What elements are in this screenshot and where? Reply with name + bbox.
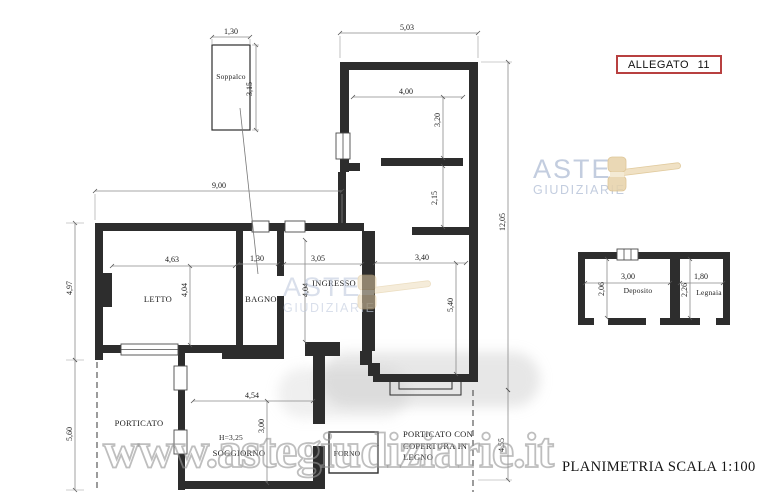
room-label-soppalco: Soppalco [216, 72, 246, 81]
dim-deposito-width: 3,00 [621, 272, 635, 281]
room-labels: Soppalco LETTO BAGNO INGRESSO SOGGIORNO … [115, 72, 723, 462]
aste-giudiziarie-logo: ASTE GIUDIZIARIE [533, 156, 626, 197]
dim-soggiorno-width: 4,54 [245, 391, 259, 400]
dim-sala-depth: 5,40 [446, 298, 455, 312]
dim-sala-width: 3,40 [415, 253, 429, 262]
gavel-icon [353, 270, 435, 316]
dim-soppalco-depth: 3,15 [245, 82, 254, 96]
room-label-bagno: BAGNO [245, 294, 277, 304]
dim-letto-width: 4,63 [165, 255, 179, 264]
dim-wing-room-depth: 3,20 [433, 113, 442, 127]
room-label-legnaia: Legnaia [696, 288, 722, 297]
dim-left-upper-depth: 4,97 [65, 281, 74, 295]
dim-deposito-depth: 2,06 [597, 282, 606, 296]
dim-ingresso-width: 3,05 [311, 254, 325, 263]
dim-bagno-width: 1,30 [250, 254, 264, 263]
plan-scale-title: PLANIMETRIA SCALA 1:100 [562, 459, 756, 476]
porch-steps [390, 382, 461, 395]
dim-legnaia-depth: 2,26 [680, 283, 689, 297]
dim-soppalco-width: 1,30 [224, 27, 238, 36]
room-label-deposito: Deposito [624, 286, 653, 295]
dim-wing-lower-depth: 2,15 [430, 191, 439, 205]
room-label-letto: LETTO [144, 294, 172, 304]
dim-wing-width: 5,03 [400, 23, 414, 32]
site-watermark: www.astegiudiziarie.it [103, 421, 553, 479]
dim-total-depth: 12,05 [498, 213, 507, 231]
dim-wing-room-width: 4,00 [399, 87, 413, 96]
dim-letto-depth: 4,04 [180, 283, 189, 297]
aste-giudiziarie-watermark-logo: ASTE GIUDIZIARIE [283, 274, 376, 315]
dim-legnaia-width: 1,80 [694, 272, 708, 281]
annex-label-box: ALLEGATO 11 [616, 55, 722, 74]
floor-plan-page: 1,30 3,15 5,03 4,00 3,20 2,15 9,00 12,05… [0, 0, 768, 496]
dim-body-width: 9,00 [212, 181, 226, 190]
dim-left-lower-depth: 5,60 [65, 427, 74, 441]
dimension-labels: 1,30 3,15 5,03 4,00 3,20 2,15 9,00 12,05… [65, 23, 708, 452]
gavel-icon [603, 152, 685, 198]
